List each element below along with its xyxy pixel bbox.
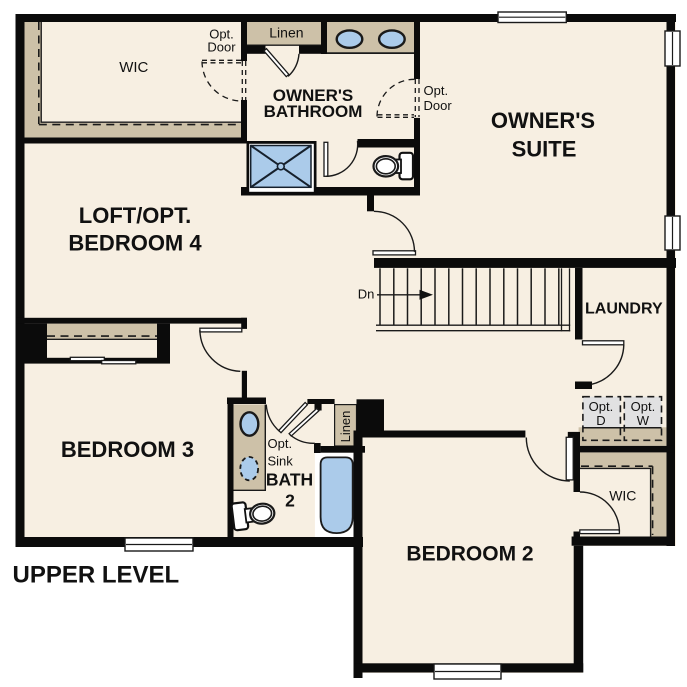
svg-text:Opt.: Opt.	[424, 83, 449, 98]
svg-text:W: W	[637, 413, 650, 428]
svg-text:UPPER LEVEL: UPPER LEVEL	[13, 561, 180, 588]
svg-text:Door: Door	[424, 98, 453, 113]
svg-text:SUITE: SUITE	[512, 137, 577, 162]
svg-text:D: D	[596, 413, 605, 428]
svg-text:Linen: Linen	[269, 25, 303, 41]
svg-text:BATHROOM: BATHROOM	[264, 102, 363, 121]
svg-text:WIC: WIC	[119, 59, 148, 76]
svg-text:Linen: Linen	[338, 411, 353, 443]
svg-text:LAUNDRY: LAUNDRY	[585, 301, 663, 318]
svg-text:BEDROOM 2: BEDROOM 2	[406, 543, 533, 566]
svg-text:LOFT/OPT.: LOFT/OPT.	[79, 203, 191, 228]
svg-text:WIC: WIC	[609, 487, 636, 503]
svg-text:2: 2	[285, 490, 295, 510]
svg-text:BEDROOM 3: BEDROOM 3	[61, 437, 194, 462]
svg-text:BATH: BATH	[266, 470, 313, 490]
svg-text:Opt.: Opt.	[268, 436, 293, 451]
svg-text:Door: Door	[207, 40, 236, 55]
svg-text:BEDROOM 4: BEDROOM 4	[68, 231, 202, 256]
svg-text:OWNER'S: OWNER'S	[491, 108, 595, 133]
svg-text:Sink: Sink	[268, 454, 294, 469]
svg-text:Dn: Dn	[358, 286, 375, 301]
